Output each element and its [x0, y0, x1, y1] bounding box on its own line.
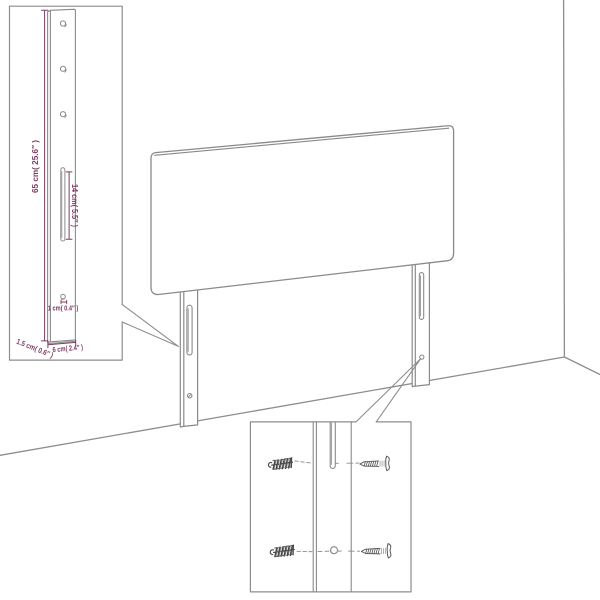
svg-text:1 cm( 0.4″ ): 1 cm( 0.4″ ) — [48, 303, 79, 312]
svg-text:14 cm( 5.5″ ): 14 cm( 5.5″ ) — [70, 184, 79, 227]
svg-text:65 cm( 25.6″ ): 65 cm( 25.6″ ) — [30, 140, 40, 193]
